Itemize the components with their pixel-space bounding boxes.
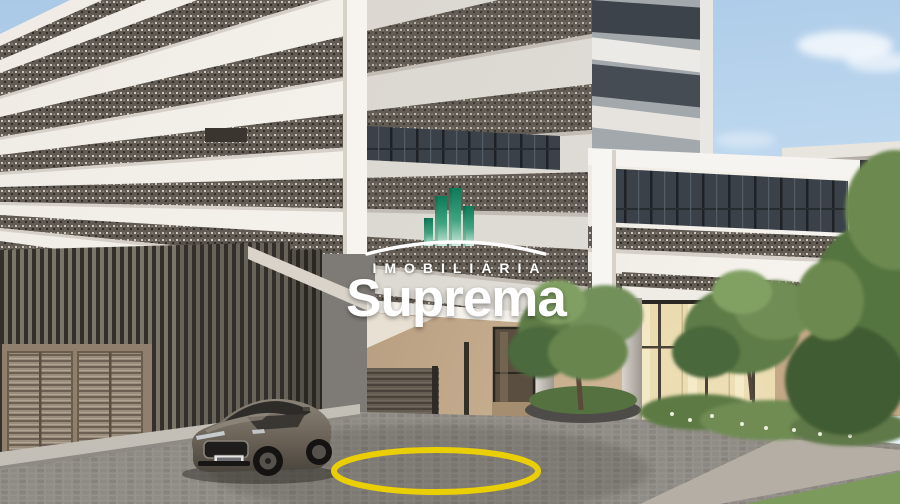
car-mirror <box>303 407 310 411</box>
scene-illustration <box>0 0 900 504</box>
fence-post <box>464 342 469 426</box>
render-canvas: IMOBILIÁRIA Suprema <box>0 0 900 504</box>
